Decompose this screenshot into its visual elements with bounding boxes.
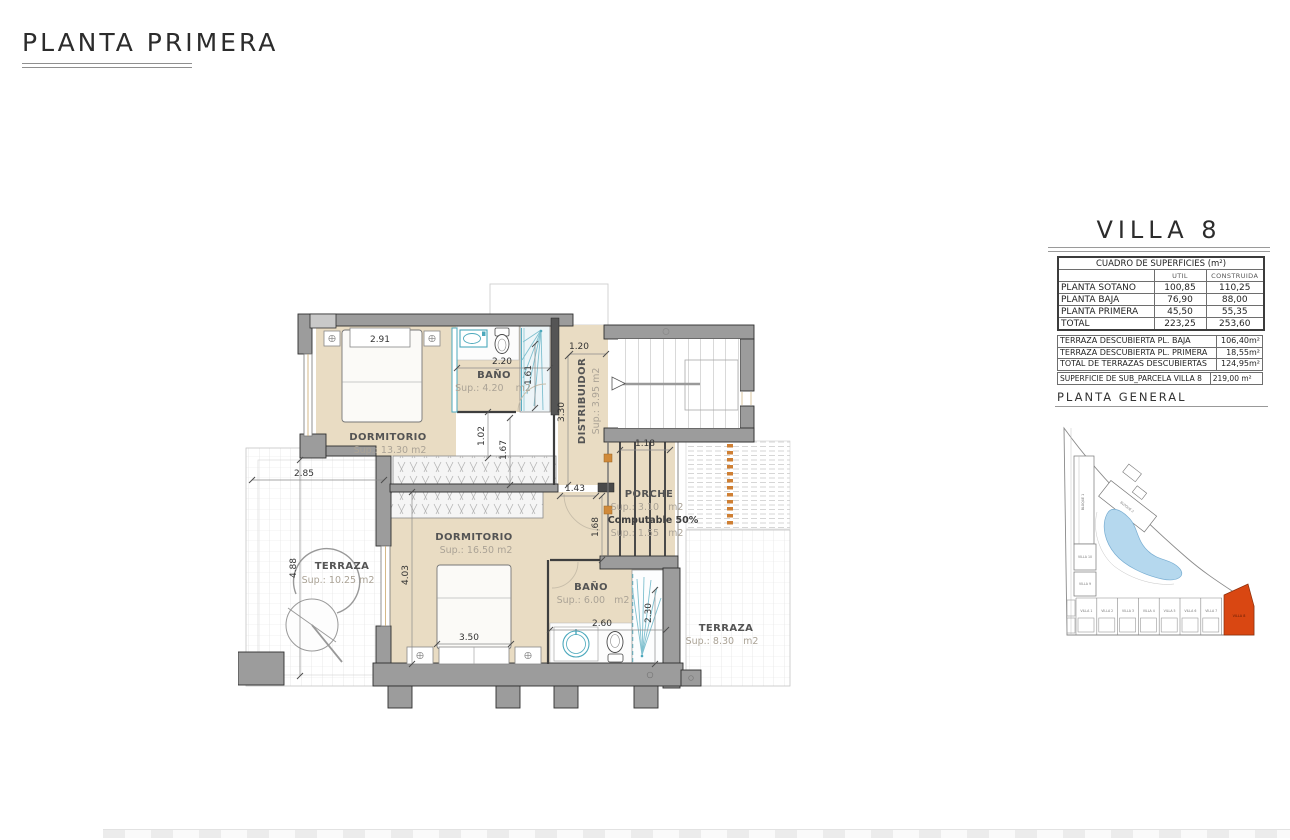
svg-text:1.02: 1.02 [477,426,487,446]
page-title-underline [22,63,192,68]
surfaces-col-construida: CONSTRUIDA [1206,270,1264,282]
toilet-2 [607,632,623,663]
table-row: TERRAZA DESCUBIERTA PL. BAJA 106,40m² [1058,336,1263,348]
svg-text:TERRAZA: TERRAZA [699,623,754,634]
terrace-right [686,530,790,686]
dimension: 1.02 [477,409,491,461]
page-title: PLANTA PRIMERA [22,28,278,57]
svg-text:2.85: 2.85 [294,469,314,479]
table-row: PLANTA SOTANO 100,85 110,25 [1058,282,1264,294]
svg-text:2.20: 2.20 [492,357,512,367]
window-bedroom2 [381,546,390,626]
sink-1 [460,330,487,347]
villa-title: VILLA 8 [1048,216,1270,244]
table-row: TERRAZA DESCUBIERTA PL. PRIMERA 18,55m² [1058,347,1263,359]
svg-text:1.68: 1.68 [591,517,601,537]
surfaces-table: CUADRO DE SUPERFICIES (m²) UTIL CONSTRUI… [1057,256,1265,331]
drawing-sheet: PLANTA PRIMERA [0,0,1290,840]
dim-bed1-width: 2.91 [370,335,390,345]
svg-text:4.03: 4.03 [401,565,411,585]
sink-2 [554,627,598,661]
parcel-table: SUPERFICIE DE SUB_PARCELA VILLA 8 219,00… [1057,372,1263,385]
svg-text:Sup.: 3.95 m2: Sup.: 3.95 m2 [591,368,602,435]
svg-text:2.60: 2.60 [592,619,612,629]
svg-text:PORCHE: PORCHE [625,489,673,500]
svg-text:VILLA 4: VILLA 4 [1143,609,1155,613]
svg-text:DISTRIBUIDOR: DISTRIBUIDOR [577,358,588,444]
surfaces-col-blank [1058,270,1154,282]
table-row: PLANTA PRIMERA 45,50 55,35 [1058,306,1264,318]
svg-text:VILLA 7: VILLA 7 [1205,609,1217,613]
window-bedroom1 [304,354,312,436]
svg-text:VILLA 5: VILLA 5 [1164,609,1176,613]
floor-plan: 2.91 [238,278,798,730]
svg-text:4.88: 4.88 [289,558,299,578]
svg-text:DORMITORIO: DORMITORIO [349,432,426,443]
svg-text:3.30: 3.30 [557,402,567,422]
svg-text:VILLA 3: VILLA 3 [1122,609,1134,613]
svg-text:Sup.: 10.25 m2: Sup.: 10.25 m2 [302,575,375,586]
svg-text:1.20: 1.20 [569,342,589,352]
svg-text:BAÑO: BAÑO [477,368,511,381]
pergola-hatch [686,441,790,529]
svg-text:VILLA 2: VILLA 2 [1101,609,1113,613]
svg-text:BAÑO: BAÑO [574,580,608,593]
site-plan: BLOQUE 1 BLOQUE 2 VILLA 10 VILLA 9 [1052,412,1270,638]
wardrobe-lower [390,492,543,518]
svg-text:Sup.: 8.30 m2: Sup.: 8.30 m2 [686,636,759,647]
svg-text:2.30: 2.30 [644,603,654,623]
svg-text:1.67: 1.67 [499,440,509,460]
svg-text:VILLA 9: VILLA 9 [1079,582,1091,586]
svg-text:VILLA 10: VILLA 10 [1078,555,1092,559]
table-row: TOTAL 223,25 253,60 [1058,318,1264,331]
table-row: TOTAL DE TERRAZAS DESCUBIERTAS 124,95m² [1058,359,1263,371]
surfaces-table-title: CUADRO DE SUPERFICIES (m²) [1058,257,1264,270]
svg-text:Sup.: 4.20 m2: Sup.: 4.20 m2 [455,383,531,394]
site-villa-left-1: VILLA 10 [1074,544,1096,570]
svg-text:BLOQUE 1: BLOQUE 1 [1081,494,1085,510]
svg-text:VILLA 8: VILLA 8 [1233,614,1246,618]
svg-text:3.50: 3.50 [459,633,479,643]
svg-text:VILLA 1: VILLA 1 [1080,609,1092,613]
svg-text:Sup.: 3.10 m2: Sup.: 3.10 m2 [611,502,684,513]
site-plan-title-underline [1055,406,1268,407]
svg-text:Sup.: 6.00 m2: Sup.: 6.00 m2 [557,595,630,606]
staircase [612,329,754,429]
svg-text:Sup.: 16.50 m2: Sup.: 16.50 m2 [440,545,513,556]
svg-text:Computable 50%: Computable 50% [608,515,699,526]
toilet-1 [495,328,509,354]
porch-door-frame-1 [604,454,612,462]
svg-text:TERRAZA: TERRAZA [315,561,370,572]
svg-text:VILLA 6: VILLA 6 [1184,609,1196,613]
table-row: PLANTA BAJA 76,90 88,00 [1058,294,1264,306]
table-row: SUPERFICIE DE SUB_PARCELA VILLA 8 219,00… [1058,373,1263,385]
terrace-table: TERRAZA DESCUBIERTA PL. BAJA 106,40m² TE… [1057,335,1263,371]
surfaces-col-util: UTIL [1154,270,1206,282]
site-plan-title: PLANTA GENERAL [1057,390,1187,404]
svg-text:DORMITORIO: DORMITORIO [435,532,512,543]
svg-text:Sup.: 13.30 m2: Sup.: 13.30 m2 [354,445,427,456]
svg-text:1.18: 1.18 [635,439,655,449]
svg-text:Sup.: 1.55 m2: Sup.: 1.55 m2 [611,528,684,539]
site-building-bloque1: BLOQUE 1 [1074,456,1094,544]
wardrobe-upper [393,456,556,484]
bottom-cutoff-strip [103,829,1290,838]
site-villa-left-2: VILLA 9 [1074,572,1096,596]
villa-title-underline [1048,247,1270,252]
